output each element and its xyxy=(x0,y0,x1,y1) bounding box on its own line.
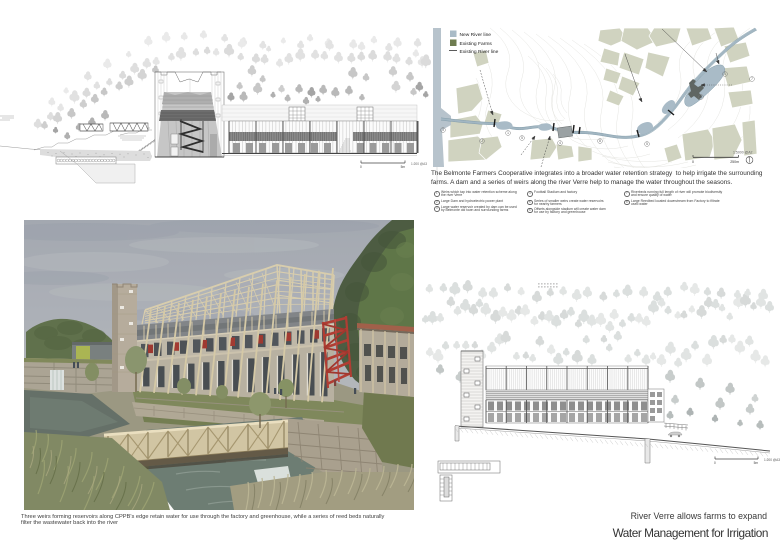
svg-text:Existing Farms: Existing Farms xyxy=(460,41,493,47)
svg-text:0: 0 xyxy=(360,165,362,169)
svg-text:5m: 5m xyxy=(754,461,759,465)
svg-text:8: 8 xyxy=(599,139,601,143)
svg-text:Existing River line: Existing River line xyxy=(460,49,499,55)
svg-text:5m: 5m xyxy=(401,165,406,169)
svg-text:1: 1 xyxy=(507,131,509,135)
svg-text:5: 5 xyxy=(521,136,523,140)
svg-text:6: 6 xyxy=(700,95,702,99)
svg-text:3: 3 xyxy=(442,128,444,132)
svg-text:New River line: New River line xyxy=(460,32,492,38)
svg-text:4: 4 xyxy=(559,141,561,145)
svg-text:5: 5 xyxy=(646,142,648,146)
svg-text:0: 0 xyxy=(714,461,716,465)
svg-text:1:200 @A3: 1:200 @A3 xyxy=(411,162,427,166)
svg-text:1: 1 xyxy=(724,72,726,76)
svg-text:2: 2 xyxy=(481,139,483,143)
svg-text:0: 0 xyxy=(692,160,694,164)
svg-text:7: 7 xyxy=(751,77,753,81)
svg-text:1:5000 @A2: 1:5000 @A2 xyxy=(733,151,753,155)
svg-text:250m: 250m xyxy=(730,160,739,164)
svg-text:1:200 @A3: 1:200 @A3 xyxy=(764,458,780,462)
